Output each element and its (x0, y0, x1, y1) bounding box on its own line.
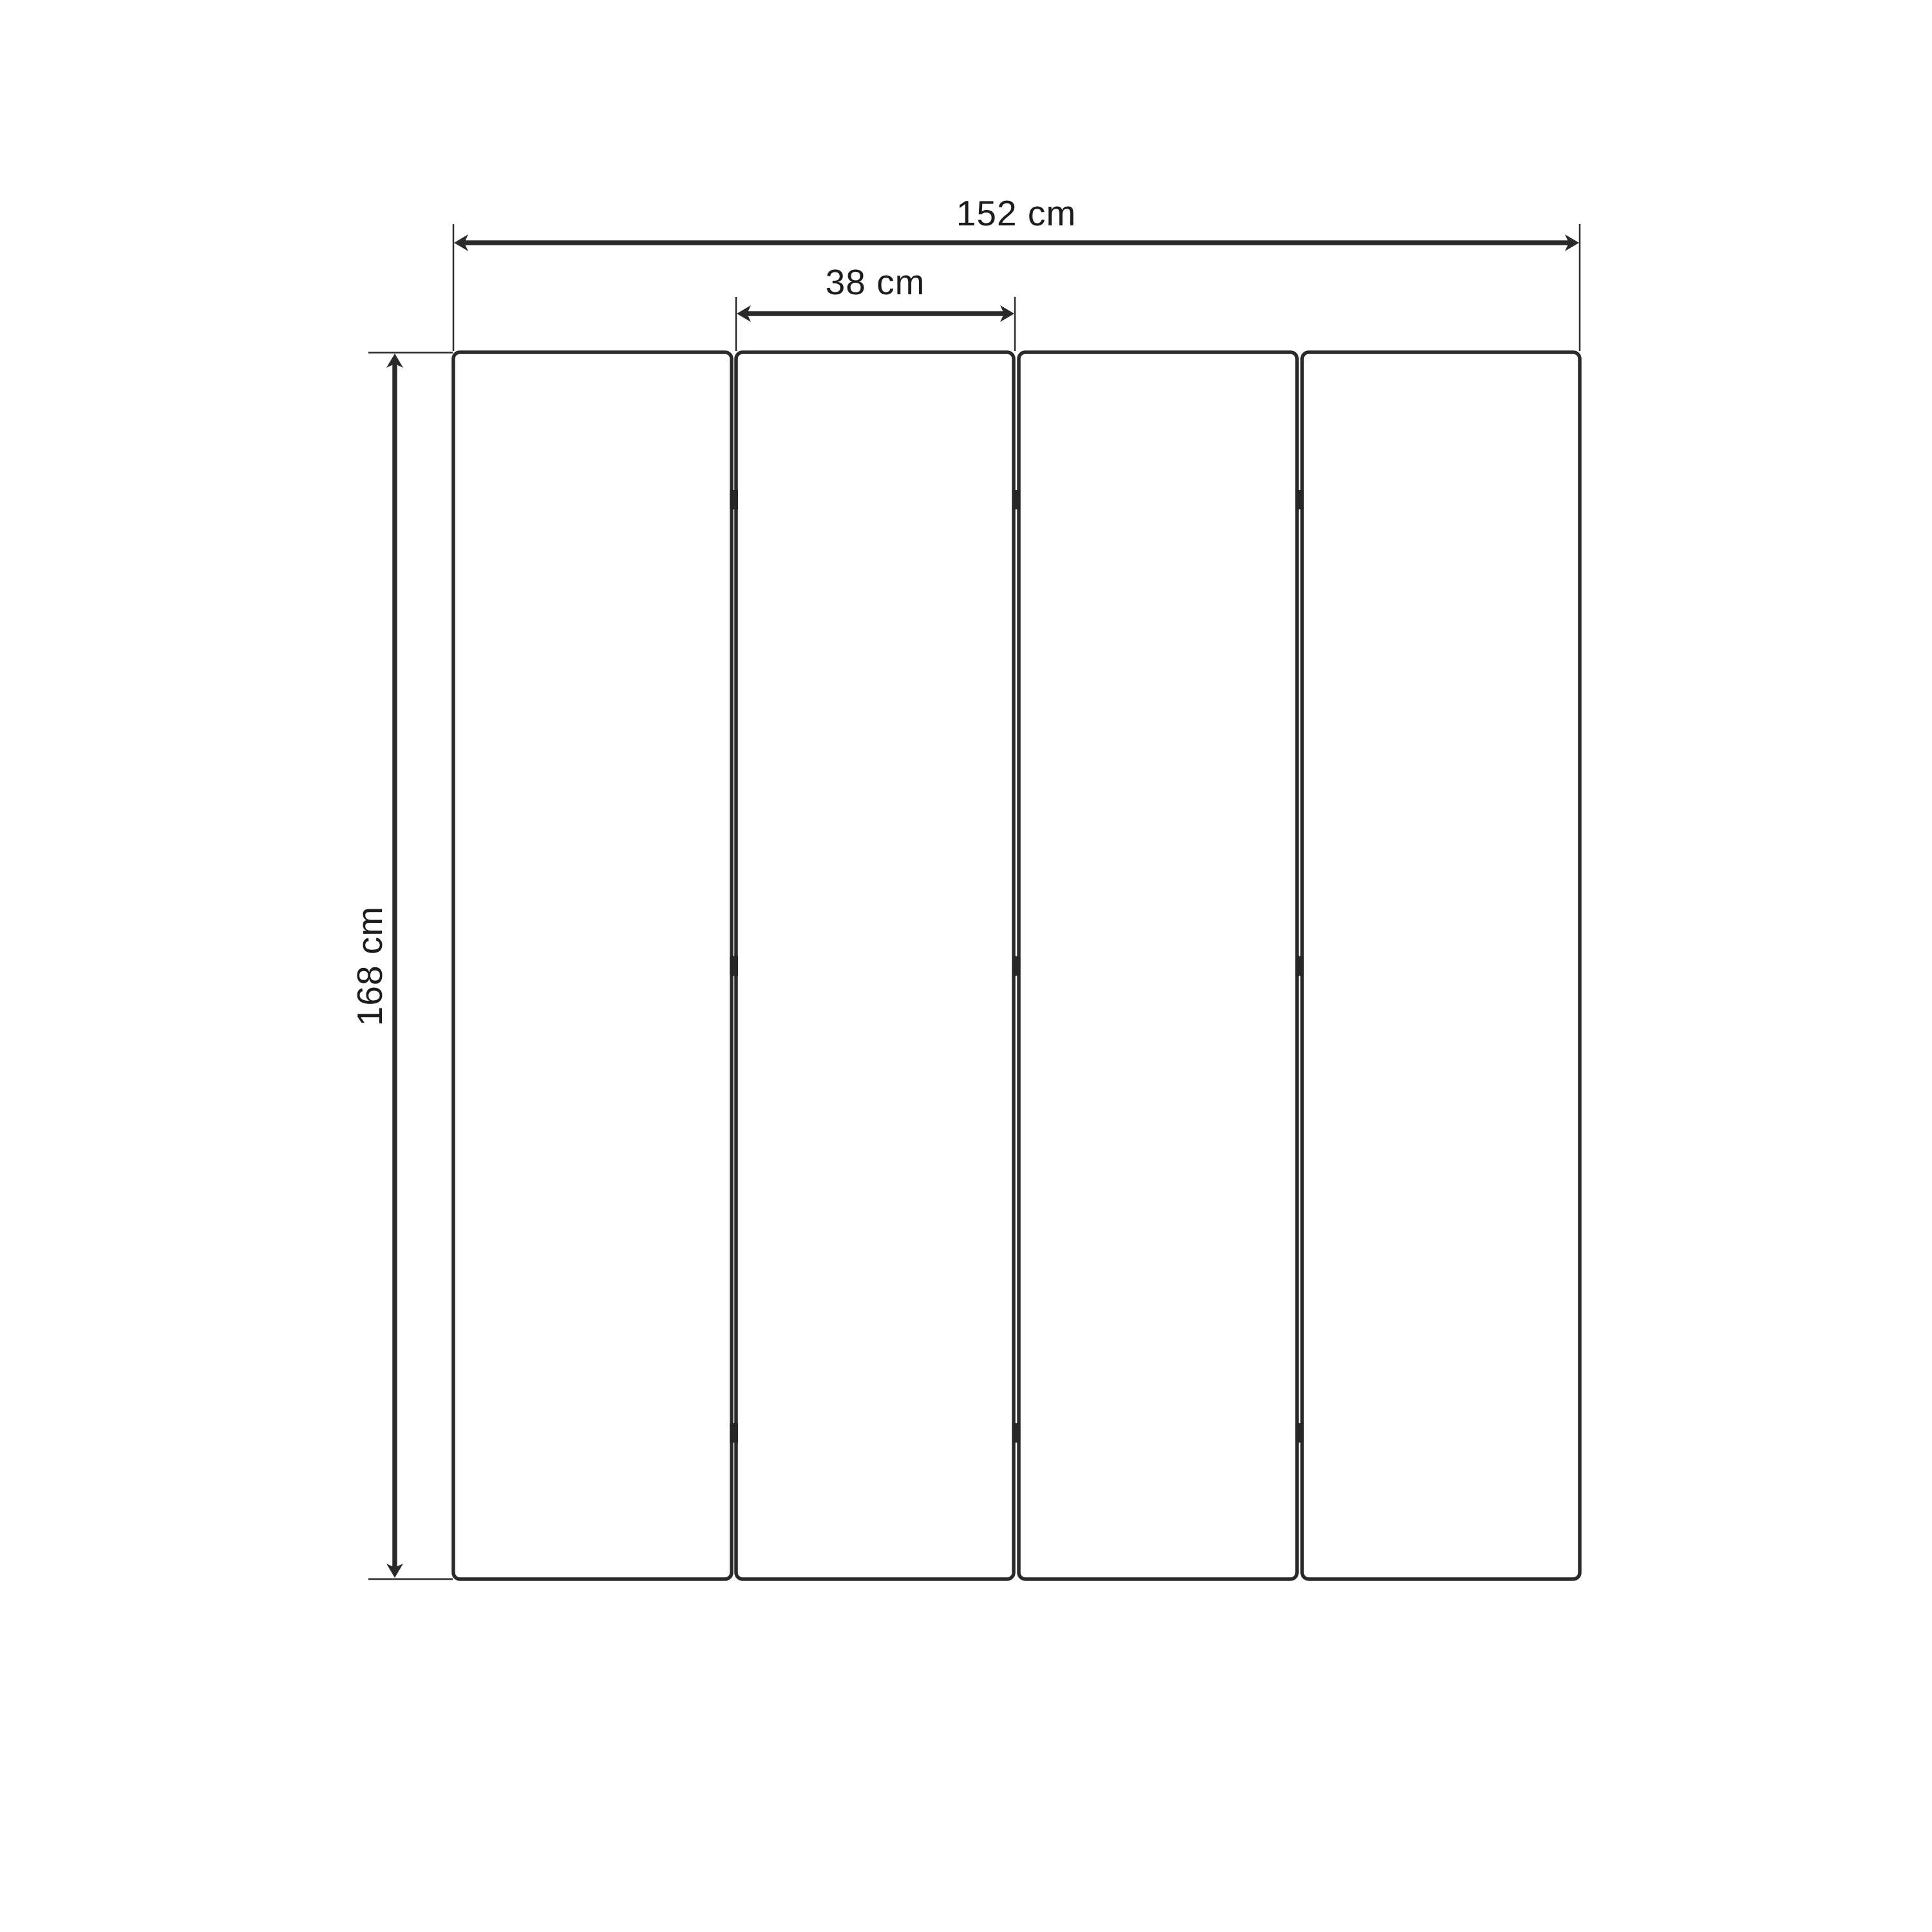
hinge-gap3-top-icon (1296, 490, 1304, 509)
panel-3 (1019, 352, 1297, 1579)
overall-width-label: 152 cm (956, 193, 1076, 233)
dimension-drawing-canvas: 152 cm 38 cm 168 cm (0, 0, 1932, 1932)
hinge-gap1-bottom-icon (730, 1423, 738, 1443)
hinge-gap2-top-icon (1012, 490, 1021, 509)
folding-screen-dimension-diagram: 152 cm 38 cm 168 cm (0, 0, 1932, 1932)
hinge-gap1-top-icon (730, 490, 738, 509)
hinge-gap3-middle-icon (1296, 956, 1304, 976)
hinge-gap2-bottom-icon (1012, 1423, 1021, 1443)
hinge-gap2-middle-icon (1012, 956, 1021, 976)
panel-width-label: 38 cm (826, 262, 925, 302)
overall-height-label: 168 cm (350, 906, 390, 1026)
panel-4 (1302, 352, 1580, 1579)
hinge-gap3-bottom-icon (1296, 1423, 1304, 1443)
panel-2 (736, 352, 1014, 1579)
panel-1 (453, 352, 732, 1579)
hinge-gap1-middle-icon (730, 956, 738, 976)
